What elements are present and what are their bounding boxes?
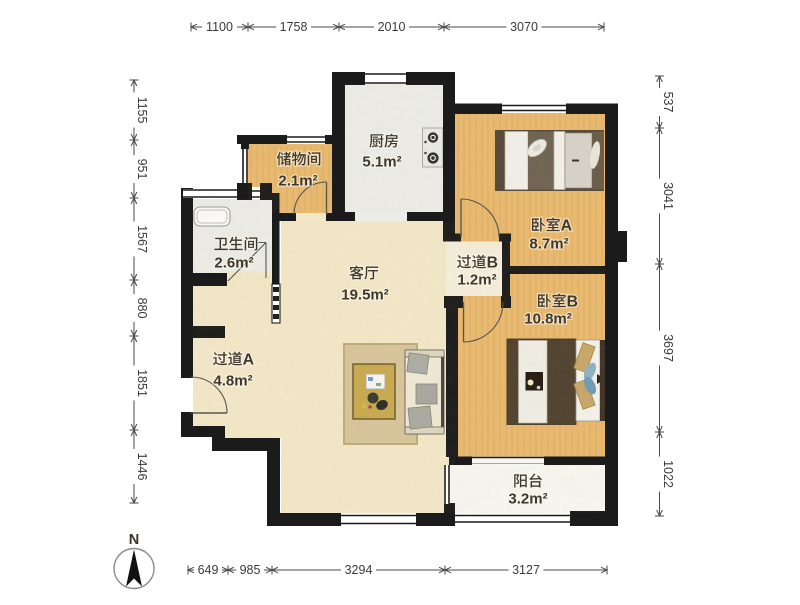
svg-text:1100: 1100 — [206, 20, 233, 34]
svg-text:2010: 2010 — [378, 20, 406, 34]
svg-text:1851: 1851 — [135, 369, 149, 397]
svg-text:1155: 1155 — [135, 97, 149, 124]
svg-text:3294: 3294 — [345, 563, 373, 577]
svg-text:880: 880 — [135, 298, 149, 319]
svg-text:3041: 3041 — [661, 182, 675, 210]
svg-text:N: N — [129, 532, 139, 548]
svg-text:537: 537 — [661, 92, 675, 113]
svg-text:3697: 3697 — [661, 334, 675, 362]
svg-text:1446: 1446 — [135, 453, 149, 481]
svg-text:1567: 1567 — [135, 225, 149, 253]
svg-text:3070: 3070 — [510, 20, 538, 34]
svg-text:649: 649 — [198, 563, 219, 577]
svg-text:1022: 1022 — [661, 460, 675, 488]
svg-text:3127: 3127 — [512, 563, 540, 577]
svg-text:985: 985 — [240, 563, 261, 577]
svg-text:951: 951 — [135, 159, 149, 180]
svg-text:1758: 1758 — [280, 20, 308, 34]
